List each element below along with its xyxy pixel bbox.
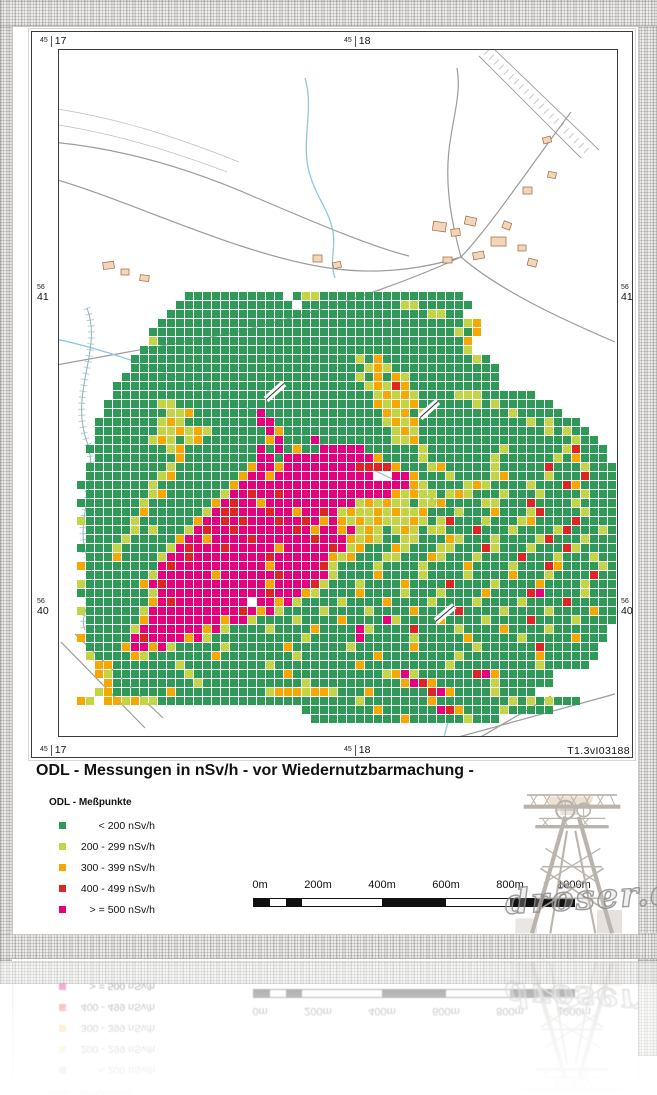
grid-ref-major: 41	[621, 292, 633, 303]
legend-swatch-orange	[59, 864, 66, 871]
scale-label: 200m	[304, 879, 332, 891]
legend-label: < 200 nSv/h	[73, 820, 155, 832]
legend-swatch-yellowgreen	[59, 843, 66, 850]
grid-ref-major: 40	[37, 606, 49, 617]
legend-item: 200 - 299 nSv/h	[59, 842, 199, 854]
map-canvas	[58, 49, 618, 737]
page-title: ODL - Messungen in nSv/h - vor Wiedernut…	[36, 762, 474, 780]
grid-ref-major: 17	[51, 36, 67, 47]
frame-hatch-right	[638, 26, 657, 961]
legend-label: 200 - 299 nSv/h	[73, 841, 155, 853]
grid-ref-major: 17	[51, 745, 67, 756]
grid-ref-major: 18	[355, 745, 371, 756]
plate-code: T1.3vI03188	[502, 745, 630, 757]
legend-item: 300 - 399 nSv/h	[59, 863, 199, 875]
grid-ref-bottom-left: 45 17	[40, 745, 66, 756]
legend-label: 300 - 399 nSv/h	[73, 862, 155, 874]
grid-ref-major: 18	[355, 36, 371, 47]
frame-hatch-bottom-reflection	[0, 961, 657, 984]
frame-hatch-right-reflection	[638, 961, 657, 1056]
grid-ref-minor: 56	[37, 598, 49, 605]
legend-label: 400 - 499 nSv/h	[73, 883, 155, 895]
grid-ref-minor: 56	[621, 284, 633, 291]
legend-item: < 200 nSv/h	[59, 821, 199, 833]
grid-ref-minor: 56	[37, 284, 49, 291]
legend-title: ODL - Meßpunkte	[49, 797, 132, 808]
grid-ref-left-lower: 56 40	[37, 598, 49, 617]
legend-swatch-magenta	[59, 906, 66, 913]
scale-label: 400m	[368, 879, 396, 891]
grid-ref-minor: 45	[344, 746, 352, 753]
grid-ref-top-mid: 45 18	[344, 36, 370, 47]
map-panel: 45 17 45 18 45 17 45 18 T1.3vI03188 56 4…	[31, 31, 633, 758]
map-document: 45 17 45 18 45 17 45 18 T1.3vI03188 56 4…	[12, 26, 639, 935]
legend-item: > = 500 nSv/h	[59, 905, 199, 917]
grid-ref-left-upper: 56 41	[37, 284, 49, 303]
grid-ref-minor: 45	[40, 746, 48, 753]
frame-hatch-left	[0, 26, 12, 961]
grid-ref-minor: 45	[40, 37, 48, 44]
frame-hatch-bottom	[0, 933, 657, 959]
legend-item: 400 - 499 nSv/h	[59, 884, 199, 896]
grid-ref-top-left: 45 17	[40, 36, 66, 47]
legend-label: > = 500 nSv/h	[73, 904, 155, 916]
grid-ref-major: 41	[37, 292, 49, 303]
legend-swatch-red	[59, 885, 66, 892]
grid-ref-minor: 45	[344, 37, 352, 44]
grid-ref-major: 40	[621, 606, 633, 617]
village-buildings	[103, 136, 557, 281]
measurement-grid	[77, 292, 617, 724]
grid-ref-right-upper: 56 41	[621, 284, 633, 303]
scanned-map-sheet: 45 17 45 18 45 17 45 18 T1.3vI03188 56 4…	[0, 0, 657, 1095]
legend-swatch-green	[59, 822, 66, 829]
grid-ref-right-lower: 56 40	[621, 598, 633, 617]
scale-label: 600m	[432, 879, 460, 891]
frame-hatch-top	[0, 0, 657, 26]
scale-label: 0m	[252, 879, 267, 891]
grid-ref-bottom-mid: 45 18	[344, 745, 370, 756]
grid-ref-minor: 56	[621, 598, 633, 605]
